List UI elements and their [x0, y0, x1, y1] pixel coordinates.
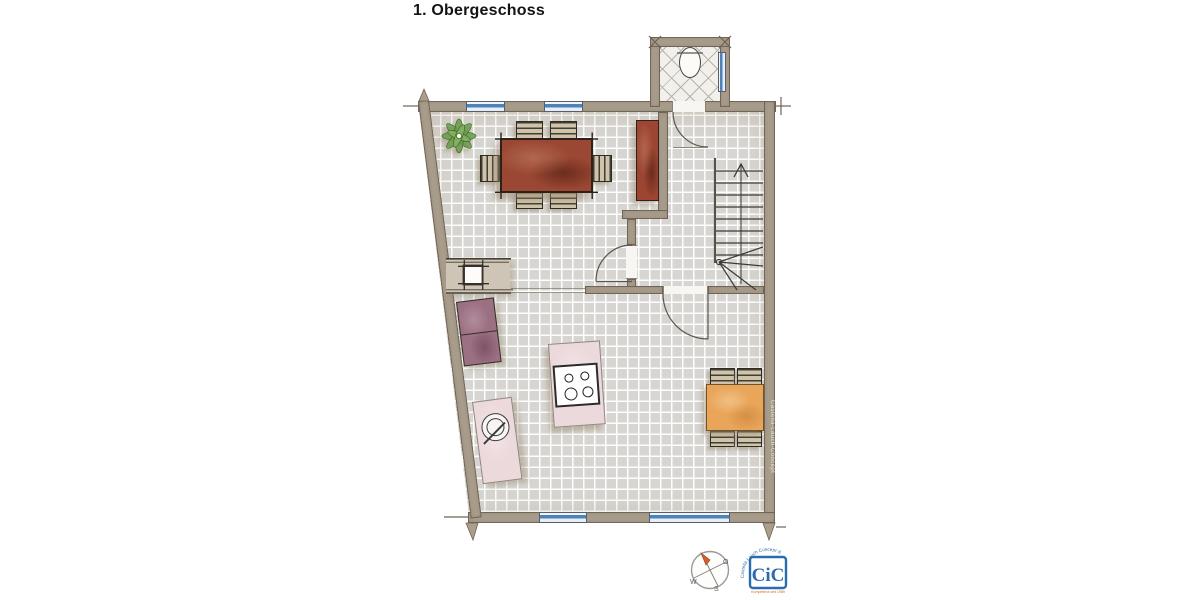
page-title: 1. Obergeschoss — [413, 2, 545, 20]
compass-west-label: W — [690, 579, 697, 586]
hall-wall-vertical-lower-a — [627, 219, 636, 245]
logo-monogram: CiC — [752, 565, 785, 586]
dining-chair — [516, 191, 543, 209]
plant-icon — [438, 115, 480, 157]
square-table — [706, 384, 764, 431]
dining-chair — [592, 155, 612, 182]
appliance-block — [456, 297, 502, 366]
window-wc — [718, 52, 726, 92]
square-table-chair — [737, 368, 762, 385]
lower-room-door-opening — [663, 286, 708, 294]
watermark: Castella-Lauch-Concept — [762, 386, 775, 488]
dining-table — [500, 138, 593, 193]
window-top-left — [466, 101, 505, 112]
square-table-chair — [737, 430, 762, 447]
hall-wall-vertical-upper — [658, 112, 668, 218]
square-table-chair — [710, 368, 735, 385]
cross-wall-right — [708, 286, 764, 294]
window-bottom-right — [649, 512, 730, 523]
window-bottom-left — [539, 512, 587, 523]
floorplan-canvas: 1. Obergeschoss — [0, 0, 1200, 600]
stove — [553, 363, 601, 408]
kitchen-island — [548, 340, 606, 427]
compass-south-label: S — [714, 586, 719, 593]
hall-wall-cap — [622, 210, 668, 219]
logo-tagline: Kompetenz seit 1989 — [751, 590, 785, 594]
dining-door-opening — [626, 245, 637, 279]
compass: O W S — [687, 547, 733, 593]
wc-wall-top — [650, 37, 730, 47]
dining-chair — [516, 121, 543, 139]
cross-wall-left — [585, 286, 663, 294]
compass-east-label: O — [723, 559, 729, 566]
wc-door-opening — [672, 101, 706, 112]
dining-chair — [480, 155, 500, 182]
square-table-chair — [710, 430, 735, 447]
toilet — [679, 47, 701, 78]
window-top-right — [544, 101, 583, 112]
sideboard — [636, 120, 659, 201]
dining-chair — [550, 121, 577, 139]
wc-wall-left — [650, 37, 660, 107]
wall-niche — [446, 258, 510, 294]
dining-chair — [550, 191, 577, 209]
logo-cic: Castella Lauch Concept ® CiC Kompetenz s… — [740, 540, 796, 596]
